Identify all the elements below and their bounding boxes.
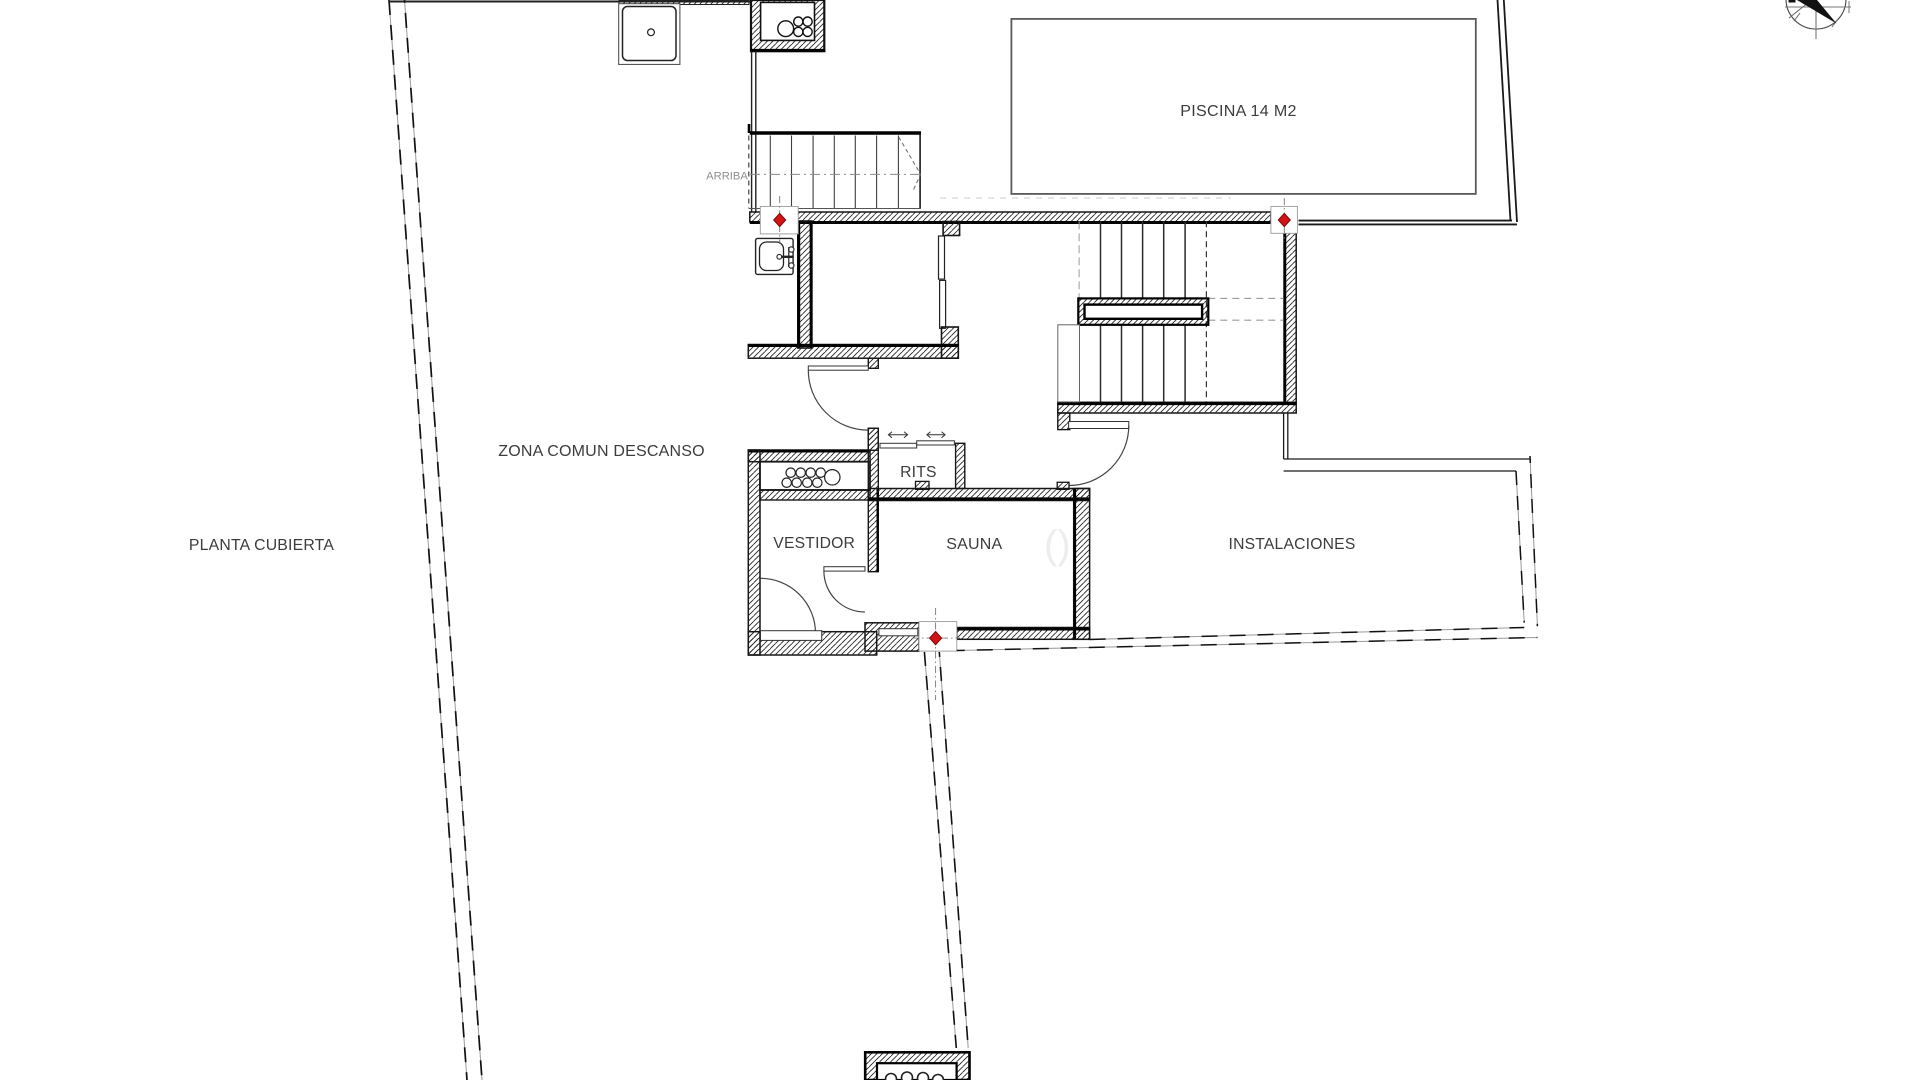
- svg-text:PISCINA 14 M2: PISCINA 14 M2: [1180, 102, 1297, 120]
- svg-text:PLANTA CUBIERTA: PLANTA CUBIERTA: [189, 537, 334, 554]
- svg-text:ARRIBA: ARRIBA: [706, 171, 748, 183]
- svg-text:(): (): [1044, 523, 1071, 567]
- svg-text:INSTALACIONES: INSTALACIONES: [1229, 536, 1356, 553]
- svg-text:RITS: RITS: [900, 464, 937, 481]
- svg-text:ZONA COMUN DESCANSO: ZONA COMUN DESCANSO: [498, 443, 705, 460]
- svg-text:VESTIDOR: VESTIDOR: [773, 535, 855, 552]
- svg-text:SAUNA: SAUNA: [946, 536, 1002, 553]
